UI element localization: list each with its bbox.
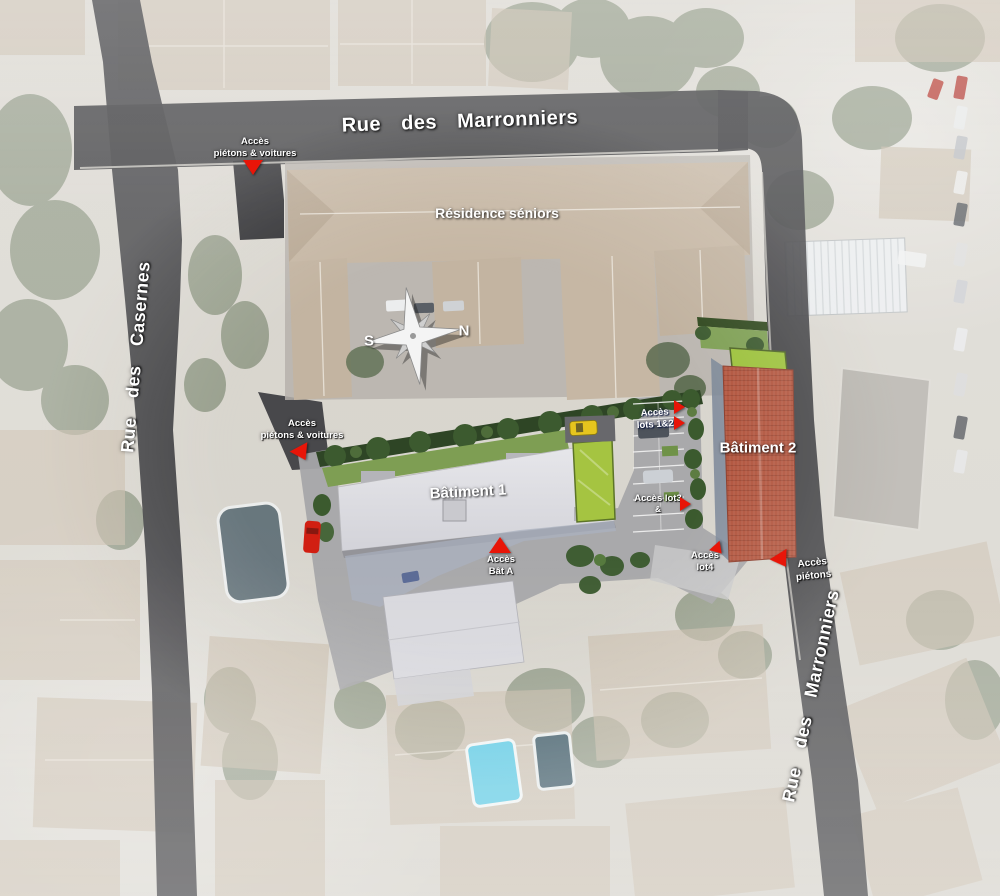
residence-complex	[285, 155, 756, 401]
building-label-residence: Résidence séniors	[435, 205, 559, 221]
access-label-line: &	[634, 505, 682, 515]
access-marker-lots-1-2-upper-icon	[674, 400, 685, 414]
access-label-line: Bât A	[487, 566, 515, 578]
access-label-line: lots 1&2	[637, 418, 675, 432]
access-label-line: Accès	[261, 418, 344, 430]
access-label-west-entrance: Accès piétons & voitures	[261, 418, 344, 442]
site-plan-map: Rue des Marronniers Rue des Casernes Rue…	[0, 0, 1000, 896]
red-car	[303, 520, 321, 553]
access-label-line: lot4	[691, 562, 719, 574]
access-label-line: Accès	[214, 136, 297, 148]
yellow-car	[570, 420, 598, 435]
access-label-lots-1-2: Accès lots 1&2	[636, 406, 674, 432]
access-marker-north-icon	[243, 160, 263, 175]
building-label-batiment2: Bâtiment 2	[720, 440, 797, 457]
access-label-line: piétons & voitures	[214, 148, 297, 160]
access-label-lot3: Accès lot3 &	[634, 493, 682, 515]
access-label-line: piétons & voitures	[261, 430, 344, 442]
access-label-pietons-east: Accès piétons	[794, 556, 832, 585]
access-label-line: Accès	[487, 554, 515, 566]
compass-letter-south: S	[364, 333, 374, 350]
access-marker-lot3-icon	[680, 497, 691, 511]
lower-wing-roof	[383, 581, 524, 679]
parked-car-light	[643, 469, 674, 484]
compass-letter-north: N	[459, 323, 470, 340]
access-marker-bat-a-icon	[489, 537, 511, 553]
access-marker-lots-1-2-lower-icon	[674, 416, 685, 430]
aerial-photo-layer	[0, 0, 1000, 896]
access-label-bat-a: Accès Bât A	[487, 554, 515, 578]
access-label-line: Accès lot3	[634, 493, 682, 505]
access-label-north-entrance: Accès piétons & voitures	[214, 136, 297, 160]
